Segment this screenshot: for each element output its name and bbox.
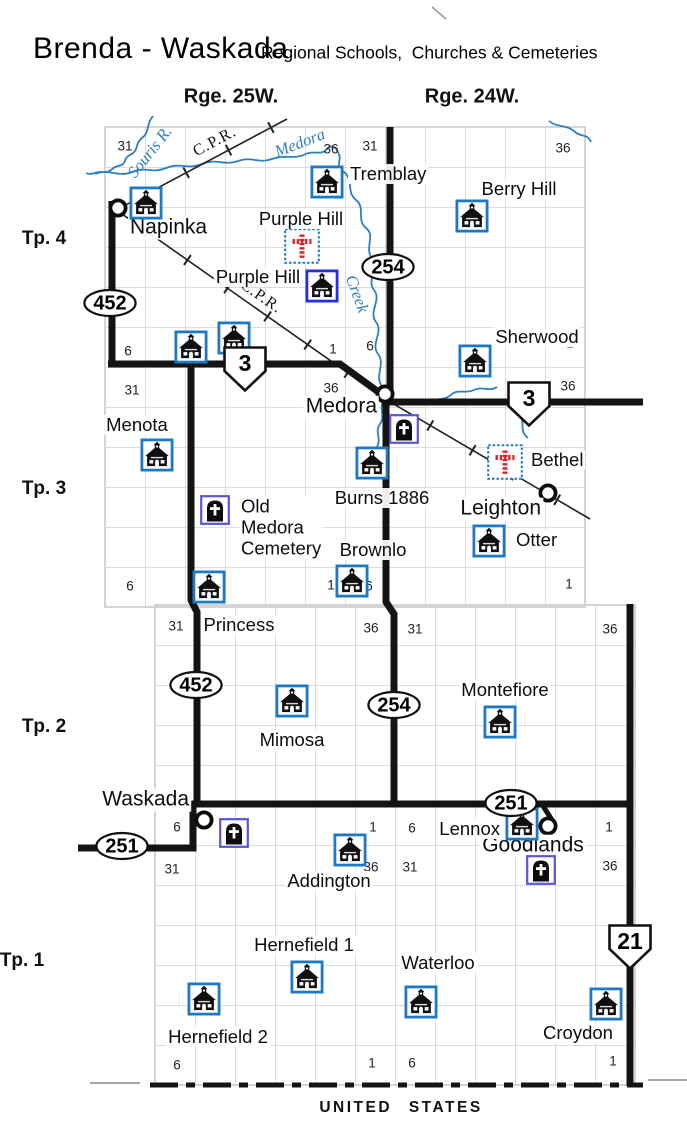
school-icon-menota xyxy=(141,439,174,472)
label-waterloo: Waterloo xyxy=(399,953,476,973)
svg-text:3: 3 xyxy=(239,350,252,376)
school-icon-waterloo xyxy=(405,986,438,1019)
highway-marker-3: 3 xyxy=(222,345,268,393)
cemetery-icon-goodlands-cemetery xyxy=(526,855,556,885)
section-number: 6 xyxy=(408,821,416,836)
section-number: 1 xyxy=(369,820,377,835)
label-addington: Addington xyxy=(285,871,372,891)
label-old-medora-cemetery: OldMedoraCemetery xyxy=(239,496,323,559)
label-menota: Menota xyxy=(104,415,170,435)
section-number: 31 xyxy=(362,139,377,154)
label-berry-hill: Berry Hill xyxy=(479,179,558,199)
label-lennox: Lennox xyxy=(437,819,502,839)
highway-marker-452: 452 xyxy=(82,288,138,318)
section-number: 36 xyxy=(602,622,617,637)
svg-text:452: 452 xyxy=(93,293,126,315)
township-label: Tp. 4 xyxy=(22,228,66,250)
township-label: Tp. 1 xyxy=(0,950,44,972)
label-mimosa: Mimosa xyxy=(258,730,327,750)
cemetery-icon-old-medora-cemetery xyxy=(200,495,230,525)
school-icon-tremblay xyxy=(311,166,344,199)
section-number: 6 xyxy=(173,1058,181,1073)
svg-text:251: 251 xyxy=(105,836,138,858)
school-icon-hernefield-1 xyxy=(291,961,324,994)
highway-marker-3: 3 xyxy=(506,380,552,428)
town-marker-napinka xyxy=(106,196,130,220)
section-number: 1 xyxy=(329,342,337,357)
section-number: 6 xyxy=(124,344,132,359)
label-brownlo: Brownlo xyxy=(338,540,409,560)
school-icon-montefiore xyxy=(484,706,517,739)
map-root: Brenda - Waskada Regional Schools, Churc… xyxy=(0,0,687,1124)
section-number: 6 xyxy=(173,820,181,835)
school-icon-berry-hill xyxy=(456,200,489,233)
svg-text:254: 254 xyxy=(377,695,411,717)
us-border-label: UNITED STATES xyxy=(319,1099,482,1117)
school-icon-hwy3-school-west xyxy=(175,331,208,364)
label-montefiore: Montefiore xyxy=(459,680,550,700)
section-number: 36 xyxy=(602,859,617,874)
label-waskada: Waskada xyxy=(100,789,191,812)
section-number: 36 xyxy=(560,379,575,394)
school-icon-brownlo xyxy=(336,565,369,598)
label-sherwood: Sherwood xyxy=(493,327,580,347)
section-number: 1 xyxy=(327,578,335,593)
section-number: 1 xyxy=(609,1054,617,1069)
section-number: 36 xyxy=(363,621,378,636)
water-label: Medora xyxy=(272,124,328,161)
school-icon-mimosa xyxy=(276,685,309,718)
section-number: 31 xyxy=(117,139,132,154)
label-napinka: Napinka xyxy=(128,217,209,240)
section-number: 31 xyxy=(124,383,139,398)
highway-marker-254: 254 xyxy=(360,252,416,282)
section-number: 36 xyxy=(323,381,338,396)
label-bethel: Bethel xyxy=(529,450,585,470)
highway-marker-251: 251 xyxy=(94,831,150,861)
section-number: 1 xyxy=(605,820,613,835)
section-number: 31 xyxy=(164,862,179,877)
svg-text:452: 452 xyxy=(179,675,212,697)
school-icon-napinka-school xyxy=(130,187,163,220)
label-hernefield-2: Hernefield 2 xyxy=(166,1027,270,1047)
section-number: 6 xyxy=(408,1056,416,1071)
school-icon-sherwood xyxy=(459,345,492,378)
label-croydon: Croydon xyxy=(541,1023,615,1043)
cemetery-icon-waskada-cemetery xyxy=(219,818,249,848)
school-icon-croydon xyxy=(590,988,623,1021)
township-label: Tp. 2 xyxy=(22,716,66,738)
section-number: 36 xyxy=(555,141,570,156)
svg-text:3: 3 xyxy=(523,385,536,411)
section-number: 6 xyxy=(366,339,374,354)
railway-label: C.P.R. xyxy=(190,123,239,161)
label-princess: Princess xyxy=(202,615,277,635)
range-label: Rge. 25W. xyxy=(184,86,278,109)
section-number: 31 xyxy=(402,860,417,875)
highway-marker-21: 21 xyxy=(607,923,653,971)
highway-marker-254: 254 xyxy=(366,690,422,720)
school-icon-hernefield-2 xyxy=(188,983,221,1016)
svg-text:251: 251 xyxy=(494,793,527,815)
section-number: 1 xyxy=(565,577,573,592)
range-label: Rge. 24W. xyxy=(425,86,519,109)
school-icon-otter xyxy=(473,525,506,558)
section-number: 31 xyxy=(407,622,422,637)
label-otter: Otter xyxy=(514,530,559,550)
svg-text:254: 254 xyxy=(371,257,405,279)
township-label: Tp. 3 xyxy=(22,478,66,500)
label-tremblay: Tremblay xyxy=(348,164,428,184)
label-purple-hill-school: Purple Hill xyxy=(214,267,302,287)
cemetery-icon-medora-cemetery xyxy=(389,414,419,444)
town-marker-waskada xyxy=(192,808,216,832)
red_cross-icon-bethel xyxy=(487,444,523,480)
highway-marker-452: 452 xyxy=(168,670,224,700)
svg-text:21: 21 xyxy=(617,928,643,954)
label-burns: Burns 1886 xyxy=(333,488,432,508)
label-hernefield-1: Hernefield 1 xyxy=(252,935,356,955)
section-number: 31 xyxy=(168,619,183,634)
school-icon-addington xyxy=(334,834,367,867)
label-purple-hill-church: Purple Hill xyxy=(257,209,345,229)
label-medora: Medora xyxy=(304,396,379,419)
school-icon-burns xyxy=(356,447,389,480)
label-leighton: Leighton xyxy=(458,498,543,521)
school-icon-purple-hill-school xyxy=(306,270,339,303)
highway-marker-251: 251 xyxy=(483,788,539,818)
red_cross-icon-purple-hill-church xyxy=(284,228,320,264)
section-number: 1 xyxy=(368,1056,376,1071)
map-features-layer: Tp. 4Tp. 3Tp. 2Tp. 1Rge. 25W.Rge. 24W.31… xyxy=(0,0,687,1124)
section-number: 6 xyxy=(126,579,134,594)
school-icon-princess xyxy=(193,571,226,604)
